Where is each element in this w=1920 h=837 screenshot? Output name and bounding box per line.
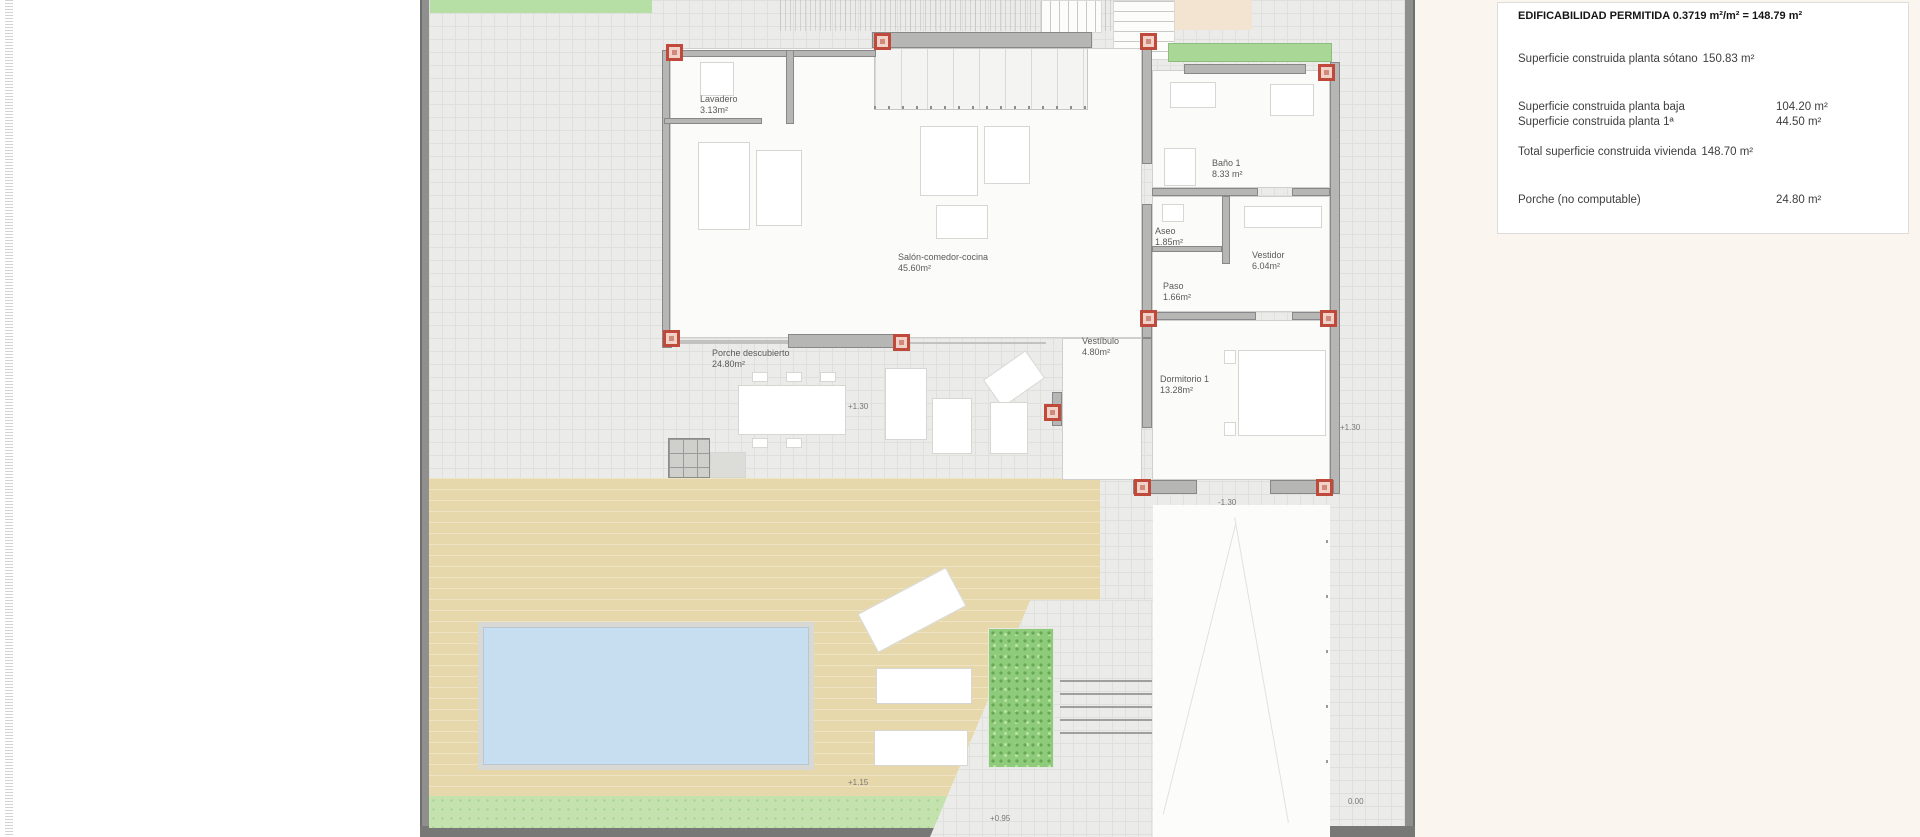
wall-north-laundry	[664, 50, 876, 57]
level-marker: -1.30	[1218, 498, 1236, 507]
wall-north-kitchen	[872, 32, 1092, 48]
hall-floor	[1062, 338, 1142, 480]
laundry-machine	[700, 62, 734, 96]
swimming-pool	[478, 622, 814, 770]
north-garden-strip	[430, 0, 652, 13]
room-label-dormitorio1: Dormitorio 113.28m²	[1160, 374, 1209, 396]
wall-divider-upper	[1142, 34, 1152, 164]
kitchen-island	[698, 142, 750, 230]
coffee-table	[936, 205, 988, 239]
pillar-marker	[874, 33, 891, 50]
kitchen-island	[756, 150, 802, 226]
sofa	[920, 126, 978, 196]
sun-lounger	[876, 668, 972, 704]
sliding-door-south	[906, 342, 1046, 344]
pillar-marker	[666, 44, 683, 61]
dimension-ticks	[874, 106, 1088, 109]
plot-wall-west	[420, 0, 429, 837]
outdoor-sofa	[885, 368, 927, 440]
porch-chair	[752, 372, 768, 382]
wall-laundry-south	[664, 118, 762, 124]
wall-bathroom-south-a	[1152, 188, 1258, 196]
porch-chair	[786, 372, 802, 382]
sun-lounger	[874, 730, 968, 766]
wall-south-living	[788, 334, 906, 348]
outdoor-armchair	[990, 402, 1028, 454]
room-label-porche: Porche descubierto24.80m²	[712, 348, 790, 370]
wall-east	[1330, 62, 1340, 494]
grass-strip	[429, 796, 1004, 828]
garden-steps	[1060, 680, 1152, 736]
pillar-marker	[1134, 479, 1151, 496]
window-south	[672, 340, 788, 344]
wall-laundry-east	[786, 50, 794, 124]
wall-north-bathroom	[1184, 64, 1306, 74]
wall-hall-bedroom	[1142, 338, 1152, 428]
room-label-vestidor: Vestidor6.04m²	[1252, 250, 1285, 272]
hedge-planter	[988, 628, 1054, 768]
boundary-ticks	[1326, 540, 1328, 770]
level-marker: +1.30	[848, 402, 868, 411]
bathroom-sink	[1170, 82, 1216, 108]
shower	[1164, 148, 1196, 186]
wall-bedroom-north-a	[1152, 312, 1256, 320]
level-marker: +1.15	[848, 778, 868, 787]
outdoor-sofa	[932, 398, 972, 454]
room-label-salon: Salón-comedor-cocina45.60m²	[898, 252, 988, 274]
wc-fixture	[1162, 204, 1184, 222]
bed	[1238, 350, 1326, 436]
panel-title: EDIFICABILIDAD PERMITIDA 0.3719 m²/m² = …	[1518, 10, 1802, 22]
porch-chair	[820, 372, 836, 382]
pillar-marker	[1044, 404, 1061, 421]
bbq-counter	[668, 438, 710, 478]
pillar-marker	[893, 334, 910, 351]
pillar-marker	[1140, 310, 1157, 327]
porch-chair	[786, 438, 802, 448]
pillar-marker	[1320, 310, 1337, 327]
room-label-paso: Paso1.66m²	[1163, 281, 1191, 303]
toilet	[1270, 84, 1314, 116]
level-marker: +0.95	[990, 814, 1010, 823]
wardrobe	[1244, 206, 1322, 228]
buildability-info-panel: EDIFICABILIDAD PERMITIDA 0.3719 m²/m² = …	[1497, 2, 1909, 234]
pillar-marker	[1140, 33, 1157, 50]
room-label-lavadero: Lavadero3.13m²	[700, 94, 738, 116]
level-marker: +1.30	[1340, 423, 1360, 432]
room-label-bano1: Baño 18.33 m²	[1212, 158, 1243, 180]
north-planter	[1168, 43, 1332, 62]
bbq-side-table	[710, 452, 746, 478]
plot-wall-east	[1405, 0, 1415, 837]
driveway	[1153, 505, 1330, 837]
kitchen-counter	[874, 48, 1088, 110]
wall-bathroom-south-b	[1292, 188, 1330, 196]
panel-row-baja: Superficie construida planta baja104.20 …	[1518, 101, 1894, 115]
nightstand	[1224, 350, 1236, 364]
wall-dressing-divider	[1222, 196, 1230, 264]
panel-row-porche: Porche (no computable)24.80 m²	[1518, 194, 1894, 208]
panel-row-total: Total superficie construida vivienda148.…	[1518, 146, 1894, 160]
sofa	[984, 126, 1030, 184]
porch-chair	[752, 438, 768, 448]
driveway-curve	[1163, 523, 1237, 814]
pillar-marker	[663, 330, 680, 347]
pillar-marker	[1318, 64, 1335, 81]
panel-row-primera: Superficie construida planta 1ª44.50 m²	[1518, 116, 1894, 130]
room-label-aseo: Aseo1.85m²	[1155, 226, 1183, 248]
driveway-curve	[1234, 517, 1289, 822]
panel-row-sotano: Superficie construida planta sótano150.8…	[1518, 53, 1894, 67]
pillar-marker	[1316, 479, 1333, 496]
room-label-vestibulo: Vestíbulo4.80m²	[1082, 336, 1119, 358]
porch-dining-table	[738, 385, 846, 435]
level-marker: 0.00	[1348, 797, 1364, 806]
nightstand	[1224, 422, 1236, 436]
wall-west	[662, 50, 670, 348]
exterior-stair-upper	[1040, 0, 1102, 33]
side-microtext-strip	[5, 0, 13, 837]
floor-plan-sheet: Lavadero3.13m² Salón-comedor-cocina45.60…	[0, 0, 1920, 837]
